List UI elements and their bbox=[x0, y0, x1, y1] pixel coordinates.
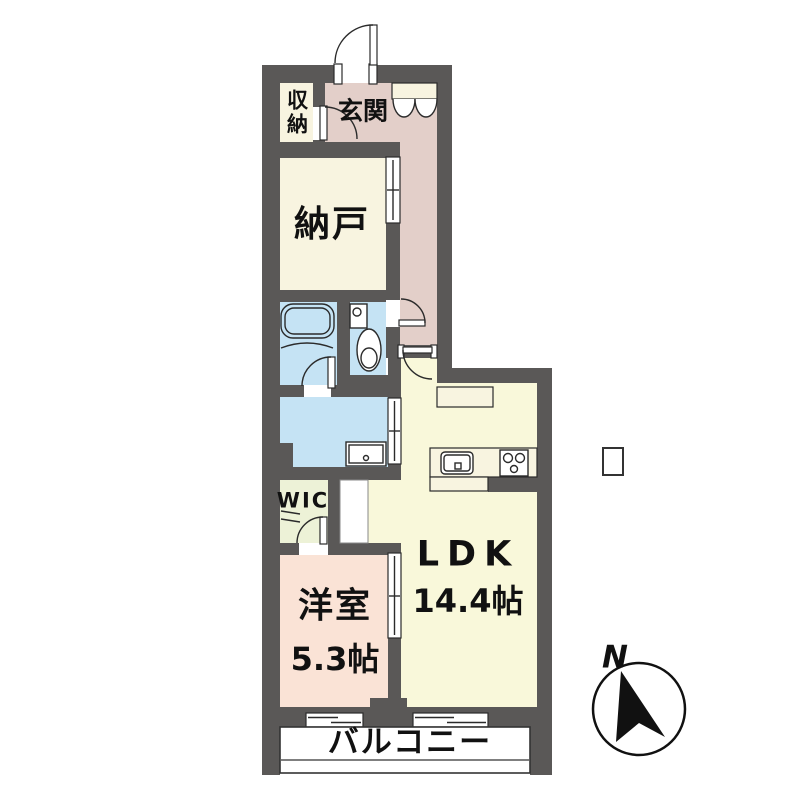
washroom-sliding-door-icon bbox=[388, 398, 401, 464]
kitchen-sink-icon bbox=[441, 452, 473, 474]
compass-icon bbox=[593, 663, 685, 755]
label-storage-upper: 収納 bbox=[286, 89, 307, 137]
ldk-niche bbox=[340, 480, 368, 543]
label-storeroom: 納戸 bbox=[294, 207, 370, 243]
washroom-wall-jut bbox=[280, 443, 293, 467]
label-wic: WIC bbox=[277, 491, 329, 512]
label-western-room-size: 5.3帖 bbox=[291, 643, 380, 675]
western-room-sliding-door-icon bbox=[388, 553, 401, 638]
stove-icon bbox=[500, 450, 528, 476]
floor-plan-drawing bbox=[0, 0, 800, 800]
label-ldk: LDK bbox=[417, 538, 519, 573]
label-north: N bbox=[602, 643, 628, 674]
label-entrance: 玄関 bbox=[338, 99, 388, 124]
label-western-room: 洋室 bbox=[298, 590, 372, 625]
floor-plan: 玄関 収納 納戸 WIC 洋室 5.3帖 LDK 14.4帖 バルコニー N bbox=[0, 0, 800, 800]
vanity-sink-icon bbox=[346, 442, 386, 466]
entrance-door-icon bbox=[334, 25, 377, 84]
western-room-floor bbox=[280, 555, 388, 707]
label-ldk-size: 14.4帖 bbox=[413, 585, 524, 617]
ldk-floor-ext bbox=[368, 480, 401, 543]
storeroom-sliding-door-icon bbox=[386, 157, 400, 223]
label-balcony: バルコニー bbox=[328, 728, 492, 759]
exterior-unit-icon bbox=[603, 448, 623, 475]
